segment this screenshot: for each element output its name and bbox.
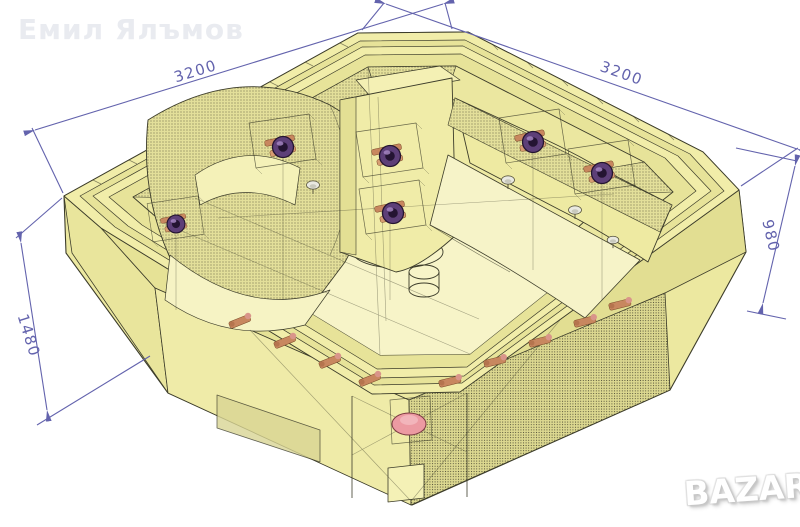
access-panel bbox=[388, 464, 424, 502]
dim-label-980: 980 bbox=[758, 218, 783, 254]
extension-line bbox=[747, 311, 786, 319]
center-column bbox=[340, 66, 460, 272]
extension-line bbox=[37, 356, 150, 425]
marketplace-logo-watermark: BAZAR bbox=[683, 466, 800, 514]
author-watermark: Емил Ялъмов bbox=[18, 13, 244, 46]
extension-line bbox=[741, 148, 798, 186]
hot-tub-drawing: 3200 3200 980 1480 bbox=[0, 0, 800, 527]
extension-line bbox=[32, 128, 63, 193]
tub-body bbox=[64, 32, 746, 505]
dim-label-3200-left: 3200 bbox=[172, 56, 220, 86]
dim-label-1480: 1480 bbox=[14, 312, 44, 360]
extension-line bbox=[16, 198, 62, 238]
dim-label-3200-right: 3200 bbox=[598, 57, 646, 89]
cad-screenshot: 3200 3200 980 1480 Емил Ялъмов BAZAR bbox=[0, 0, 800, 527]
